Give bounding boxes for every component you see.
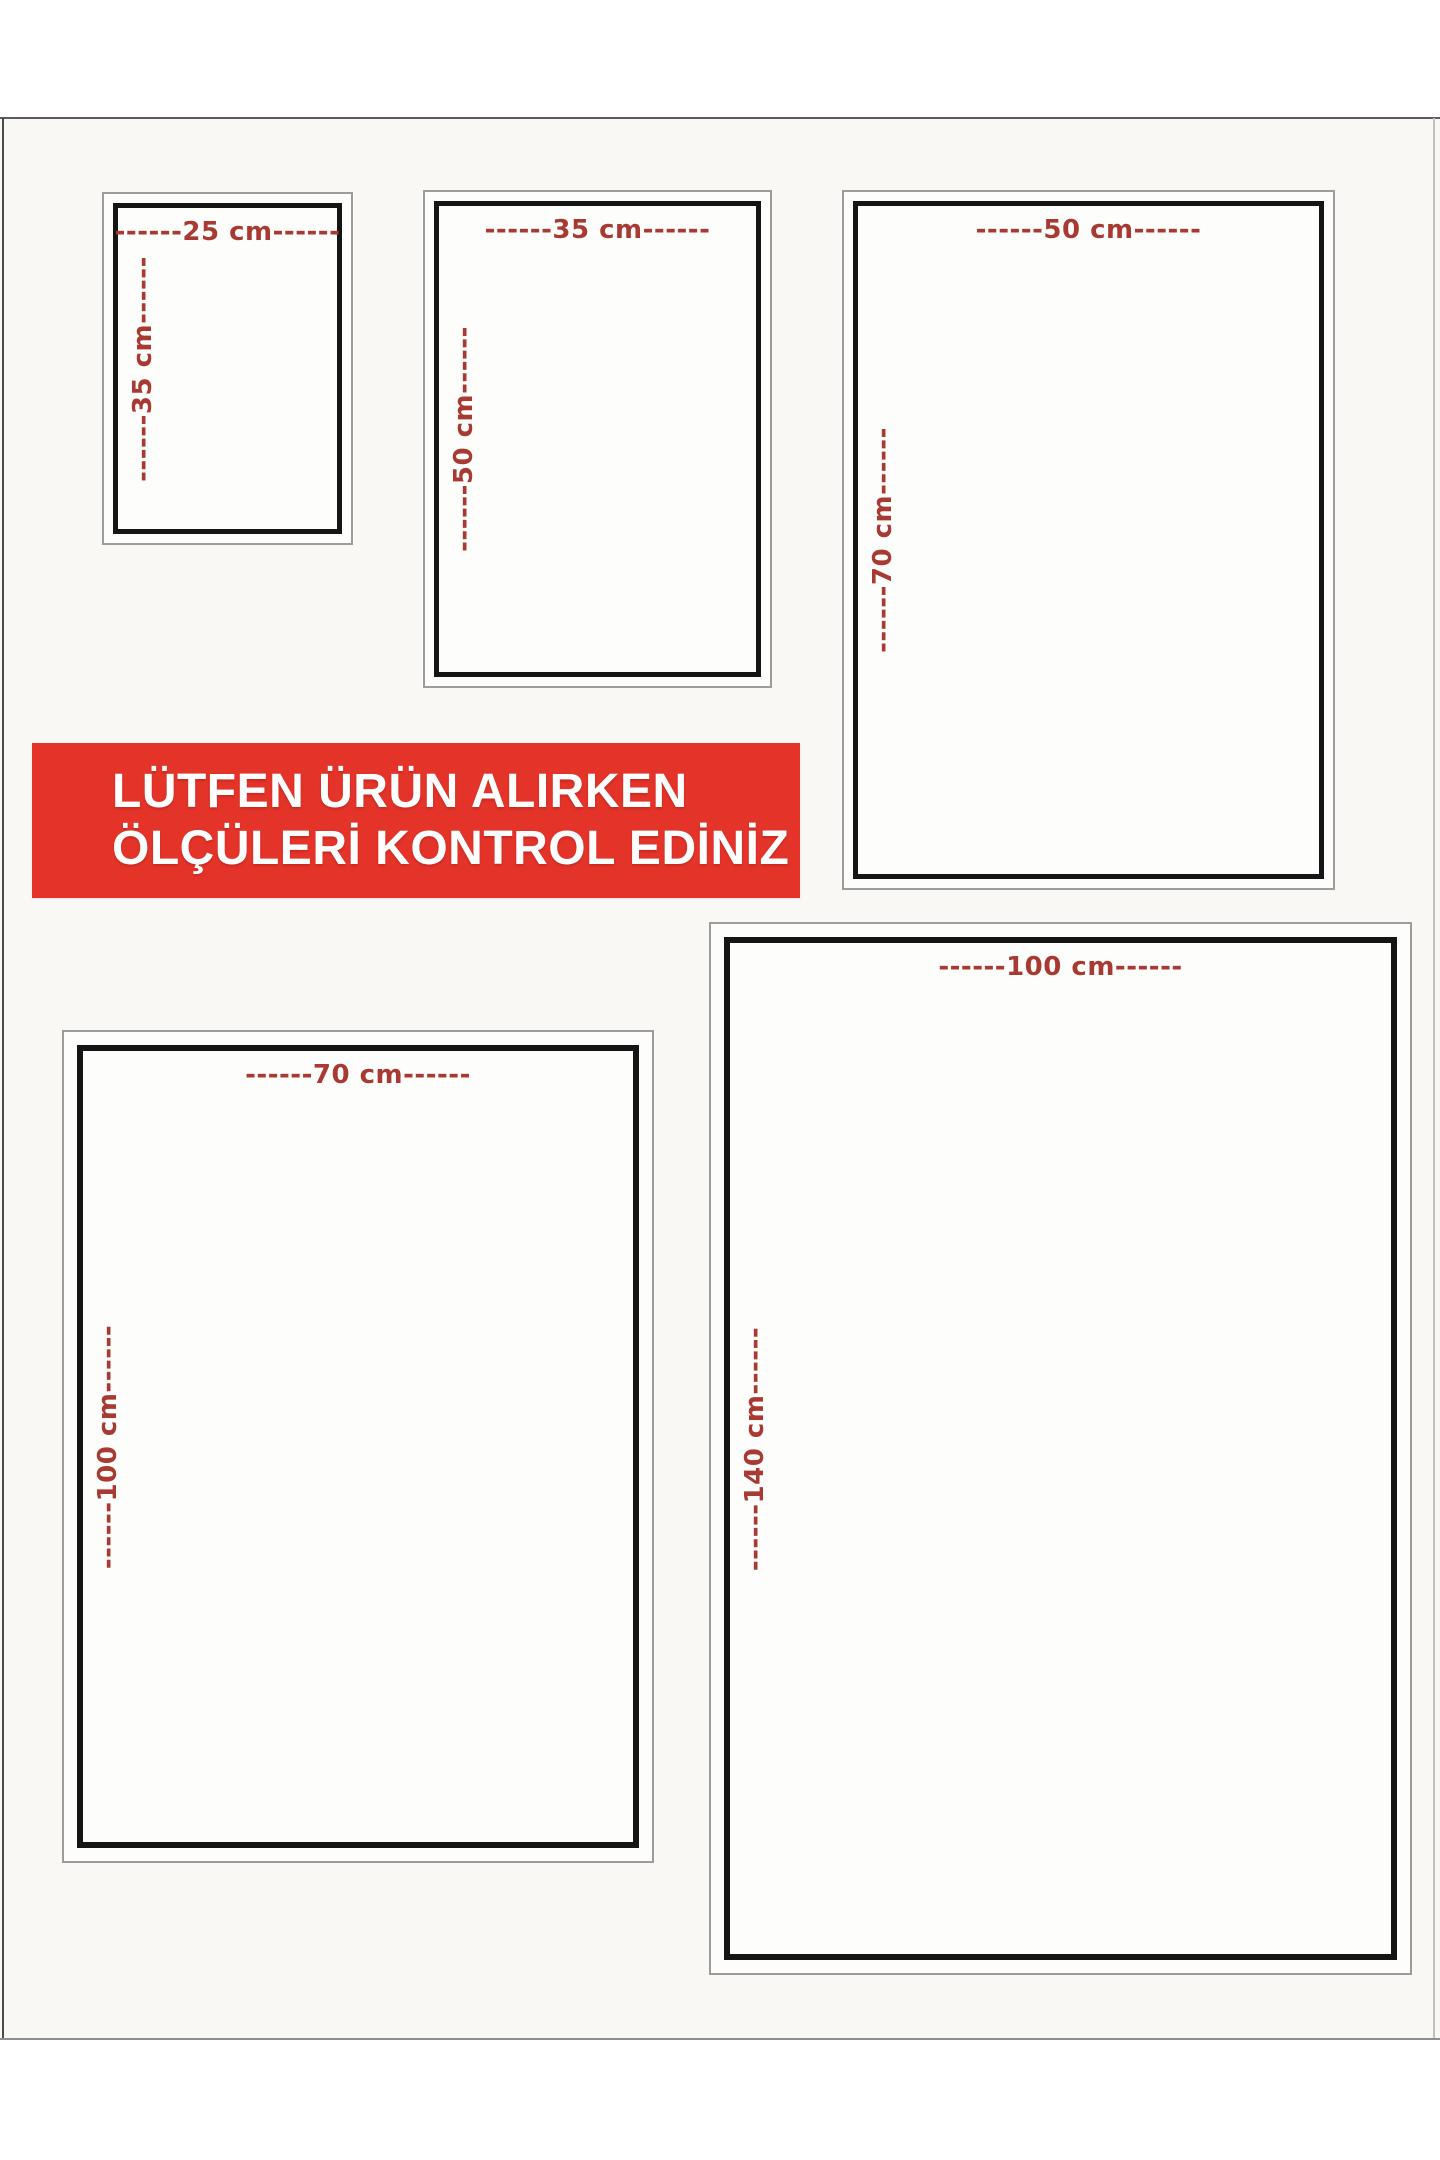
height-dimension-label: ------70 cm------ [868, 427, 898, 653]
size-box-35x50-frame: ------35 cm------ ------50 cm------ [434, 201, 761, 677]
height-dimension-label: ------100 cm------ [93, 1324, 123, 1568]
size-box-100x140: ------100 cm------ ------140 cm------ [709, 922, 1412, 1975]
warning-banner-line-1: LÜTFEN ÜRÜN ALIRKEN [112, 763, 800, 820]
size-box-50x70-frame: ------50 cm------ ------70 cm------ [853, 201, 1324, 879]
sheet-top-edge-line [0, 117, 1440, 119]
size-box-70x100-frame: ------70 cm------ ------100 cm------ [77, 1045, 639, 1848]
size-box-25x35: ------25 cm------ ------35 cm------ [102, 192, 353, 545]
warning-banner-line-2: ÖLÇÜLERİ KONTROL EDİNİZ [112, 820, 800, 877]
warning-banner: LÜTFEN ÜRÜN ALIRKEN ÖLÇÜLERİ KONTROL EDİ… [32, 743, 800, 898]
height-dimension-label: ------35 cm------ [128, 256, 158, 482]
width-dimension-label: ------100 cm------ [938, 952, 1182, 982]
size-box-35x50: ------35 cm------ ------50 cm------ [423, 190, 772, 688]
height-dimension-label: ------50 cm------ [449, 326, 479, 552]
width-dimension-label: ------50 cm------ [976, 215, 1202, 245]
size-box-100x140-frame: ------100 cm------ ------140 cm------ [724, 937, 1397, 1960]
sheet-right-edge-line [1433, 118, 1435, 2038]
size-box-25x35-frame: ------25 cm------ ------35 cm------ [113, 203, 342, 534]
sheet-left-edge-line [2, 118, 4, 2038]
width-dimension-label: ------35 cm------ [485, 215, 711, 245]
width-dimension-label: ------70 cm------ [245, 1060, 471, 1090]
height-dimension-label: ------140 cm------ [740, 1326, 770, 1570]
sheet-bottom-edge-line [0, 2038, 1440, 2040]
width-dimension-label: ------25 cm------ [115, 217, 341, 247]
size-box-50x70: ------50 cm------ ------70 cm------ [842, 190, 1335, 890]
size-box-70x100: ------70 cm------ ------100 cm------ [62, 1030, 654, 1863]
